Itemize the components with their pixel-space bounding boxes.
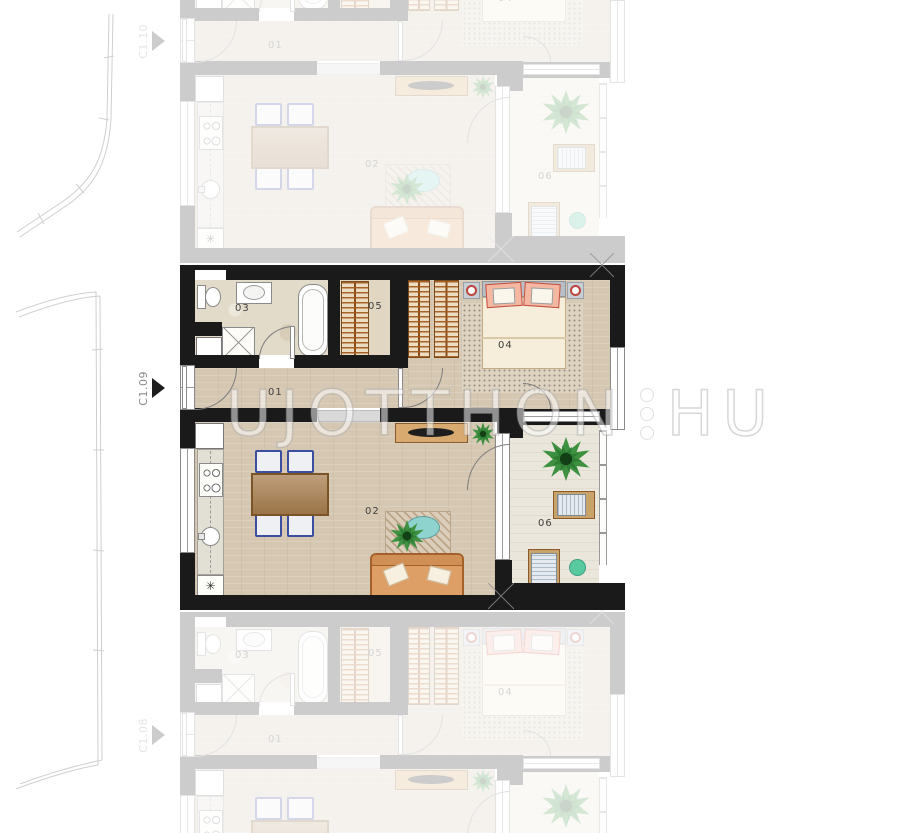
room-label-bath: 03: [235, 650, 250, 661]
bath-partition-wall: [195, 322, 222, 336]
bed-cushion-left: [493, 287, 516, 304]
watermark-dots-icon: [641, 389, 653, 439]
dining-chair-4: [287, 167, 314, 190]
bathroom-door-arc: [259, 0, 294, 12]
wall-hall-living-left: [180, 61, 317, 75]
balcony-plant-icon: [542, 437, 590, 481]
bath-shaft: [196, 684, 222, 703]
wall-hall-living-left: [180, 755, 317, 769]
wall-closet-bedroom-divider: [390, 627, 408, 702]
wall-bottom: [180, 595, 512, 610]
wall-bath-closet-divider: [328, 627, 340, 702]
balcony-railing: [599, 777, 607, 833]
dining-table: [251, 820, 329, 833]
survey-cross-top-right: [590, 253, 614, 277]
shower-tray: [222, 327, 255, 358]
apartment-unit-main: C1.09: [180, 265, 625, 610]
hall-living-opening: [317, 410, 380, 422]
kitchen-cabinet: [195, 770, 224, 796]
bedroom-wardrobe-left: [408, 0, 430, 11]
entry-door-leaf: [182, 19, 187, 62]
bedroom-door-leaf: [398, 21, 403, 61]
console-plant-icon: [472, 422, 494, 446]
dining-chair-3: [255, 167, 282, 190]
entry-door-leaf: [182, 366, 187, 409]
survey-cross-bottom: [488, 236, 514, 262]
console-plant-icon: [472, 75, 494, 99]
room-label-closet: 05: [368, 648, 383, 659]
wall-left-upper: [180, 265, 195, 365]
wall-bath-bottom-right: [294, 8, 408, 21]
unit-arrow-icon: [152, 378, 165, 398]
bathroom-door-leaf: [290, 673, 295, 706]
wall-bath-closet-divider: [328, 0, 340, 8]
dining-chair-4: [287, 514, 314, 537]
kitchen-cabinet: [195, 423, 224, 449]
bedroom-wardrobe-left: [408, 280, 430, 358]
bed-blanket-line: [482, 337, 566, 339]
tv-icon: [408, 775, 454, 784]
room-label-bedroom: 04: [498, 340, 513, 351]
bedroom-balcony-door-glass: [523, 64, 600, 75]
bedside-lamp-left: [466, 632, 477, 643]
wall-bath-bottom-left: [195, 8, 259, 21]
balcony-plant-icon: [542, 784, 590, 828]
wall-right-bedroom: [610, 265, 625, 347]
apartment-unit-bottom: C1.08: [180, 612, 625, 833]
unit-arrow-icon: [152, 725, 165, 745]
bed-cushion-left: [493, 634, 516, 651]
dining-chair-2: [287, 797, 314, 820]
bedroom-balcony-door-glass: [523, 758, 600, 769]
watermark-tld: HU: [667, 383, 777, 445]
bedside-lamp-right: [570, 285, 581, 296]
bed-mattress: [482, 0, 566, 22]
bedroom-window: [610, 694, 625, 777]
kitchen-window: [180, 101, 195, 206]
bedroom-door-leaf: [398, 715, 403, 755]
dining-chair-2: [287, 103, 314, 126]
kitchen-window: [180, 795, 195, 833]
washing-machine: ✳: [197, 228, 224, 250]
balcony-railing: [599, 430, 607, 565]
wall-bottom: [180, 248, 512, 263]
wall-top: [180, 265, 625, 280]
room-label-hall: 01: [268, 387, 283, 398]
room-label-living: 02: [365, 159, 380, 170]
bed-cushion-right: [531, 634, 554, 651]
hall-living-opening: [317, 63, 380, 75]
lounge-chair-top-cushion: [557, 494, 586, 516]
bathtub-inner: [302, 289, 324, 351]
bedroom-wardrobe-left: [408, 627, 430, 705]
kitchen-sink-tap: [198, 533, 205, 540]
wall-living-bedroom: [380, 755, 497, 769]
toilet-bowl: [205, 287, 221, 307]
survey-cross-bottom: [488, 583, 514, 609]
room-label-bedroom: 04: [498, 687, 513, 698]
wall-bath-bottom-left: [195, 355, 259, 368]
stove: [199, 463, 223, 497]
balcony-plant-icon: [542, 90, 590, 134]
bedroom-window: [610, 347, 625, 430]
bedside-lamp-left: [466, 285, 477, 296]
wall-closet-bedroom-divider: [390, 280, 408, 355]
bath-partition-wall: [195, 669, 222, 683]
kitchen-sink-tap: [198, 186, 205, 193]
washing-machine-symbol: ✳: [205, 579, 215, 593]
dining-chair-1: [255, 450, 282, 473]
wall-hall-living-left: [180, 408, 317, 422]
entry-door-leaf: [182, 713, 187, 756]
room-label-bath: 03: [235, 303, 250, 314]
dining-chair-3: [255, 514, 282, 537]
wall-balcony-bottom: [505, 583, 625, 610]
bedroom-wardrobe-right: [434, 280, 459, 358]
bedside-lamp-right: [570, 632, 581, 643]
bedroom-balcony-door-glass: [523, 411, 600, 422]
washing-machine-symbol: ✳: [205, 232, 215, 246]
bathroom-sink-basin: [243, 285, 265, 300]
bathroom-door-leaf: [290, 326, 295, 359]
living-plant-icon: [390, 520, 424, 552]
room-label-balcony: 06: [538, 171, 553, 182]
room-label-balcony: 06: [538, 518, 553, 529]
wall-left-upper: [180, 0, 195, 18]
room-label-closet: 05: [368, 301, 383, 312]
wall-top: [180, 612, 625, 627]
unit-label-text: C1.10: [137, 24, 150, 59]
wall-closet-bedroom-divider: [390, 0, 408, 8]
bed-cushion-right: [531, 287, 554, 304]
stove: [199, 810, 223, 833]
shower-tray: [222, 674, 255, 705]
wall-bath-bottom-right: [294, 355, 408, 368]
unit-tag: C1.10: [137, 14, 165, 68]
tv-icon: [408, 81, 454, 90]
room-label-hall: 01: [268, 40, 283, 51]
balcony-side-table: [569, 212, 586, 229]
wall-bath-closet-divider: [328, 280, 340, 355]
wall-left-upper: [180, 612, 195, 712]
wall-living-bedroom: [380, 61, 497, 75]
dining-chair-1: [255, 103, 282, 126]
closet-wardrobe: [341, 281, 369, 357]
console-plant-icon: [472, 769, 494, 793]
bathroom-sink-basin: [243, 632, 265, 647]
unit-arrow-icon: [152, 31, 165, 51]
hall-living-opening: [317, 757, 380, 769]
wall-right-bedroom: [610, 612, 625, 694]
dining-chair-2: [287, 450, 314, 473]
unit-tag: C1.08: [137, 708, 165, 762]
floor-plan-canvas: C1.10: [0, 0, 912, 833]
stove: [199, 116, 223, 150]
bedroom-door-leaf: [398, 368, 403, 408]
balcony-side-table: [569, 559, 586, 576]
room-label-bedroom: 04: [498, 0, 513, 4]
unit-tag: C1.09: [137, 361, 165, 415]
dining-table: [251, 473, 329, 516]
bedroom-window: [610, 0, 625, 83]
dining-chair-1: [255, 797, 282, 820]
bedroom-wardrobe-right: [434, 627, 459, 705]
kitchen-cabinet: [195, 76, 224, 102]
dining-table: [251, 126, 329, 169]
lounge-chair-top-cushion: [557, 147, 586, 169]
washing-machine: ✳: [197, 575, 224, 597]
bedroom-wardrobe-right: [434, 0, 459, 11]
living-plant-icon: [390, 173, 424, 205]
bathroom-door-leaf: [290, 0, 295, 12]
wall-living-bedroom: [380, 408, 497, 422]
wall-top-niche: [192, 270, 226, 280]
unit-label-text: C1.08: [137, 718, 150, 753]
apartment-unit-top: C1.10: [180, 0, 625, 263]
bed-blanket-line: [482, 684, 566, 686]
sofa-backrest: [372, 555, 462, 566]
unit-label-text: C1.09: [137, 371, 150, 406]
balcony-railing: [599, 83, 607, 218]
room-label-hall: 01: [268, 734, 283, 745]
wall-bath-bottom-left: [195, 702, 259, 715]
sofa-backrest: [372, 208, 462, 219]
kitchen-window: [180, 448, 195, 553]
closet-wardrobe: [341, 628, 369, 704]
bathtub-inner: [302, 636, 324, 698]
room-label-living: 02: [365, 506, 380, 517]
wall-bath-bottom-right: [294, 702, 408, 715]
bath-shaft: [196, 337, 222, 356]
tv-icon: [408, 428, 454, 437]
wall-top-niche: [192, 617, 226, 627]
toilet-bowl: [205, 634, 221, 654]
